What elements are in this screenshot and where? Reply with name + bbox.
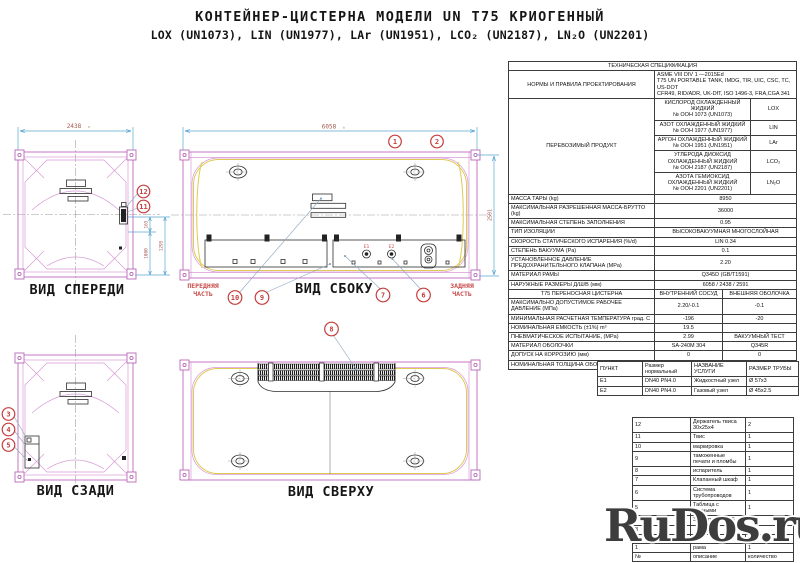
product-code: LIN xyxy=(750,121,796,135)
spec-value: 0.95 xyxy=(654,219,796,227)
front-part-label-2: ЧАСТЬ xyxy=(193,290,213,298)
spec-value: 2.20 xyxy=(654,256,796,270)
service-header: РАЗМЕР ТРУБЫ xyxy=(746,362,798,376)
balloon-6: 6 xyxy=(417,288,431,302)
spec-dual-row: МИНИМАЛЬНАЯ РАСЧЕТНАЯ ТЕМПЕРАТУРА град. … xyxy=(509,314,796,323)
balloon-2: 2 xyxy=(431,135,444,148)
spec-value: 6058 / 2438 / 2591 xyxy=(654,281,796,289)
leader-8-dot xyxy=(355,368,357,370)
product-un: № ООН 2201 (UN2201) xyxy=(673,186,732,192)
spec-outer-value: 0 xyxy=(722,351,796,359)
leader-5 xyxy=(15,447,29,461)
spec-label: НОМИНАЛЬНАЯ ЕМКОСТЬ (±1%) m³ xyxy=(509,324,654,332)
product-un: № ООН 1073 (UN1073) xyxy=(673,112,732,118)
norms-line: T75 UN PORTABLE TANK, IMDG, TIR, UIC, CS… xyxy=(657,78,794,90)
top-lifting-lugs xyxy=(228,370,427,471)
service-pipe: Ø 45х2.5 xyxy=(746,387,798,395)
spec-inner-value: -196 xyxy=(654,315,722,323)
balloon-1: 1 xyxy=(389,135,402,148)
spec-label: ТИП ИЗОЛЯЦИИ xyxy=(509,228,654,236)
spec-inner-value: 2.20/-0.1 xyxy=(654,299,722,313)
spec-norms-row: НОРМЫ И ПРАВИЛА ПРОЕКТИРОВАНИЯ ASME VIII… xyxy=(509,70,796,98)
spec-value: Q345D (GB/T1591) xyxy=(654,271,796,279)
spec-inner-value: 19.5 xyxy=(654,324,722,332)
spec-value: 36000 xyxy=(654,204,796,218)
front-part-label-1: ПЕРЕДНЯЯ xyxy=(187,282,218,290)
spec-outer-value: ВАКУУМНЫЙ ТЕСТ xyxy=(722,333,796,341)
product-name: УГЛЕРОДА ДИОКСИД ОХЛАЖДЕННЫЙ ЖИДКИЙ xyxy=(657,152,748,164)
part-no: 8 xyxy=(633,467,690,475)
front-dim-1080: 1080 xyxy=(144,248,150,259)
product-name: КИСЛОРОД ОХЛАЖДЕННЫЙ ЖИДКИЙ xyxy=(657,100,748,112)
rear-view: 3 4 5 ВИД СЗАДИ xyxy=(2,335,136,499)
service-header: ПУНКТ xyxy=(598,362,642,376)
balloon-9: 9 xyxy=(255,291,269,305)
spec-value: 8950 xyxy=(654,195,796,203)
svg-text:1: 1 xyxy=(393,138,397,146)
product-code: LCO₂ xyxy=(750,151,796,172)
part-qty: 1 xyxy=(745,467,793,475)
side-view: 6058 ± 1 2 xyxy=(171,124,499,305)
spec-label: МАКСИМАЛЬНО ДОПУСТИМОЕ РАБОЧЕЕ ДАВЛЕНИЕ … xyxy=(509,299,654,313)
product-name-cell: АРГОН ОХЛАЖДЕННЫЙ ЖИДКИЙ № ООН 1951 (UN1… xyxy=(654,136,750,150)
front-view: 2438 ± 12 xyxy=(3,123,170,298)
spec-outer-value: -20 xyxy=(722,315,796,323)
spec-products-list: КИСЛОРОД ОХЛАЖДЕННЫЙ ЖИДКИЙ № ООН 1073 (… xyxy=(654,99,796,194)
spec-row: ТИП ИЗОЛЯЦИИ ВЫСОКОВАКУУМНАЯ МНОГОСЛОЙНА… xyxy=(509,227,796,236)
spec-row: МАКСИМАЛЬНАЯ СТЕПЕНЬ ЗАПОЛНЕНИЯ 0.95 xyxy=(509,218,796,227)
spec-inner-value: 0 xyxy=(654,351,722,359)
part-desc: таможенные печати и пломбы xyxy=(690,452,745,466)
spec-label: СКОРОСТЬ СТАТИЧЕСКОГО ИСПАРЕНИЯ (%/d) xyxy=(509,238,654,246)
service-row: E2 DN40 PN4.0 Газовый узел Ø 45х2.5 xyxy=(598,386,798,395)
part-qty: 1 xyxy=(745,452,793,466)
blueprint-page: { "title": { "line1": "КОНТЕЙНЕР-ЦИСТЕРН… xyxy=(0,0,800,563)
svg-text:8: 8 xyxy=(329,326,333,334)
service-pipe: Ø 57х3 xyxy=(746,377,798,385)
top-view-label: ВИД СВЕРХУ xyxy=(288,484,374,500)
side-dim-height: 2591 xyxy=(488,209,494,221)
front-dim-1295: 1295 xyxy=(159,240,165,251)
spec-row: МАССА ТАРЫ (kg) 8950 xyxy=(509,194,796,203)
rear-view-label: ВИД СЗАДИ xyxy=(37,483,115,499)
spec-norms-value: ASME VIII DIV 1 —2015Ed T75 UN PORTABLE … xyxy=(654,71,796,98)
parts-row: 10 маркировка 1 xyxy=(633,442,793,451)
product-name-cell: АЗОТ ОХЛАЖДЕННЫЙ ЖИДКИЙ № ООН 1977 (UN19… xyxy=(654,121,750,135)
product-row: АЗОТА ГЕМИОКСИД ОХЛАЖДЕННЫЙ ЖИДКИЙ № ООН… xyxy=(654,172,796,194)
service-table: ПУНКТ Размер нормальный НАЗВАНИЕ УСЛУГИ … xyxy=(597,361,799,396)
top-evaporator xyxy=(258,363,395,392)
rear-part-label-1: ЗАДНЯЯ xyxy=(450,282,474,290)
title-line1: КОНТЕЙНЕР-ЦИСТЕРНА МОДЕЛИ UN T75 КРИОГЕН… xyxy=(0,9,800,25)
spec-label: НАРУЖНЫЕ РАЗМЕРЫ Д/Ш/В (мм) xyxy=(509,281,654,289)
spec-label: МИНИМАЛЬНАЯ РАСЧЕТНАЯ ТЕМПЕРАТУРА град. … xyxy=(509,315,654,323)
part-no: 9 xyxy=(633,452,690,466)
part-qty: 1 xyxy=(745,486,793,500)
product-name-cell: КИСЛОРОД ОХЛАЖДЕННЫЙ ЖИДКИЙ № ООН 1073 (… xyxy=(654,99,750,120)
spec-outer-value: Q345R xyxy=(722,342,796,350)
front-dim-165: 165 xyxy=(144,220,150,228)
product-row: КИСЛОРОД ОХЛАЖДЕННЫЙ ЖИДКИЙ № ООН 1073 (… xyxy=(654,99,796,120)
part-no: 10 xyxy=(633,443,690,451)
side-dim-length-tol: ± xyxy=(343,126,345,130)
front-dim-width-tol: ± xyxy=(88,125,90,129)
spec-inner-value: 2.99 xyxy=(654,333,722,341)
side-lifting-lugs xyxy=(226,163,427,181)
top-view: 8 ВИД СВЕРХУ xyxy=(180,322,480,500)
spec-dual-row: МАКСИМАЛЬНО ДОПУСТИМОЕ РАБОЧЕЕ ДАВЛЕНИЕ … xyxy=(509,298,796,313)
spec-row: СТЕПЕНЬ ВАКУУМА (Pa) 0.1 xyxy=(509,246,796,255)
parts-row: 8 испаритель 1 xyxy=(633,466,793,475)
balloon-8: 8 xyxy=(325,322,339,336)
side-equipment-bay xyxy=(205,235,465,269)
balloon-4: 4 xyxy=(2,423,15,436)
service-item: E2 xyxy=(598,387,642,395)
e1-label: E1 xyxy=(364,244,370,250)
product-name-cell: АЗОТА ГЕМИОКСИД ОХЛАЖДЕННЫЙ ЖИДКИЙ № ООН… xyxy=(654,173,750,194)
spec-value: ВЫСОКОВАКУУМНАЯ МНОГОСЛОЙНАЯ xyxy=(654,228,796,236)
part-no: 6 xyxy=(633,486,690,500)
spec-label: ДОПУСК НА КОРРОЗИЮ (мм) xyxy=(509,351,654,359)
dual-header-inner: ВНУТРЕННИЙ СОСУД xyxy=(654,290,722,298)
product-name: АЗОТА ГЕМИОКСИД ОХЛАЖДЕННЫЙ ЖИДКИЙ xyxy=(657,174,748,186)
svg-text:4: 4 xyxy=(6,426,10,434)
parts-row: 11 Твис 1 xyxy=(633,432,793,441)
part-qty: 1 xyxy=(745,476,793,484)
part-desc: Твис xyxy=(690,433,745,441)
dual-header-label: Т75 ПЕРЕНОСНАЯ ЦИСТЕРНА xyxy=(509,290,654,298)
leader-4 xyxy=(15,431,27,446)
side-document-plates xyxy=(311,194,346,217)
svg-text:7: 7 xyxy=(381,292,385,300)
balloon-7: 7 xyxy=(376,288,390,302)
product-un: № ООН 1951 (UN1951) xyxy=(673,143,732,149)
spec-dual-row: ПНЕВМАТИЧЕСКОЕ ИСПЫТАНИЕ, (MPa) 2.99 ВАК… xyxy=(509,332,796,341)
spec-products-row: ПЕРЕВОЗИМЫЙ ПРОДУКТ КИСЛОРОД ОХЛАЖДЕННЫЙ… xyxy=(509,98,796,194)
parts-footer-no: № xyxy=(633,553,690,561)
part-desc: Держатель твиса 30х25х4 xyxy=(690,418,745,432)
service-size: DN40 PN4.0 xyxy=(642,387,691,395)
service-size: DN40 PN4.0 xyxy=(642,377,691,385)
balloon-3: 3 xyxy=(2,408,15,421)
svg-text:2: 2 xyxy=(435,138,439,146)
spec-dual-row: МАТЕРИАЛ ОБОЛОЧКИ SA-240M 304 Q345R xyxy=(509,341,796,350)
product-row: АЗОТ ОХЛАЖДЕННЫЙ ЖИДКИЙ № ООН 1977 (UN19… xyxy=(654,120,796,135)
side-view-label: ВИД СБОКУ xyxy=(295,281,373,297)
svg-text:5: 5 xyxy=(6,442,10,450)
product-row: УГЛЕРОДА ДИОКСИД ОХЛАЖДЕННЫЙ ЖИДКИЙ № ОО… xyxy=(654,150,796,172)
drawing-title: КОНТЕЙНЕР-ЦИСТЕРНА МОДЕЛИ UN T75 КРИОГЕН… xyxy=(0,9,800,42)
balloon-10: 10 xyxy=(228,291,242,305)
leader-10-dot xyxy=(320,198,322,200)
spec-outer-value xyxy=(722,324,796,332)
service-item: E1 xyxy=(598,377,642,385)
svg-text:6: 6 xyxy=(421,292,425,300)
part-qty: 1 xyxy=(745,433,793,441)
parts-footer-row: № описание количество xyxy=(633,552,793,561)
spec-label: МАССА ТАРЫ (kg) xyxy=(509,195,654,203)
product-un: № ООН 2187 (UN2187) xyxy=(673,165,732,171)
balloon-12: 12 xyxy=(137,185,150,198)
watermark: RuDos.ru xyxy=(604,499,800,552)
service-row: E1 DN40 PN4.0 Жидкостный узел Ø 57х3 xyxy=(598,376,798,385)
parts-row: 6 Система трубопроводов 1 xyxy=(633,485,793,500)
leader-6-dot xyxy=(392,258,394,260)
spec-dual-row: ДОПУСК НА КОРРОЗИЮ (мм) 0 0 xyxy=(509,350,796,359)
part-desc: Система трубопроводов xyxy=(690,486,745,500)
leader-12 xyxy=(127,194,138,206)
spec-row: МАТЕРИАЛ РАМЫ Q345D (GB/T1591) xyxy=(509,270,796,279)
parts-row: 9 таможенные печати и пломбы 1 xyxy=(633,451,793,466)
part-desc: Клапанный шкаф xyxy=(690,476,745,484)
spec-row: НАРУЖНЫЕ РАЗМЕРЫ Д/Ш/В (мм) 6058 / 2438 … xyxy=(509,280,796,289)
product-un: № ООН 1977 (UN1977) xyxy=(673,128,732,134)
leader-3 xyxy=(14,417,26,438)
spec-label: МАКСИМАЛЬНАЯ СТЕПЕНЬ ЗАПОЛНЕНИЯ xyxy=(509,219,654,227)
product-row: АРГОН ОХЛАЖДЕННЫЙ ЖИДКИЙ № ООН 1951 (UN1… xyxy=(654,135,796,150)
spec-value: 0.1 xyxy=(654,247,796,255)
service-header: Размер нормальный xyxy=(642,362,691,376)
spec-header-row: ТЕХНИЧЕСКАЯ СПЕЦИФИКАЦИЯ xyxy=(509,62,796,70)
spec-row: УСТАНОВЛЕННОЕ ДАВЛЕНИЕ ПРЕДОХРАНИТЕЛЬНОГ… xyxy=(509,255,796,270)
product-code: LAr xyxy=(750,136,796,150)
side-dim-length: 6058 xyxy=(322,124,337,131)
spec-row: МАКСИМАЛЬНАЯ РАЗРЕШЕННАЯ МАССА-БРУТТО (k… xyxy=(509,203,796,218)
service-name: Жидкостный узел xyxy=(691,377,746,385)
rear-part-label-2: ЧАСТЬ xyxy=(452,290,472,298)
spec-row: СКОРОСТЬ СТАТИЧЕСКОГО ИСПАРЕНИЯ (%/d) LI… xyxy=(509,237,796,246)
part-qty: 2 xyxy=(745,418,793,432)
leader-11 xyxy=(128,208,138,212)
part-desc: испаритель xyxy=(690,467,745,475)
svg-text:3: 3 xyxy=(6,411,10,419)
part-desc: маркировка xyxy=(690,443,745,451)
parts-row: 7 Клапанный шкаф 1 xyxy=(633,475,793,484)
balloon-5: 5 xyxy=(2,439,15,452)
spec-dual-row: НОМИНАЛЬНАЯ ЕМКОСТЬ (±1%) m³ 19.5 xyxy=(509,323,796,332)
front-dim-width: 2438 xyxy=(67,123,82,130)
e2-label: E2 xyxy=(389,244,395,250)
service-header: НАЗВАНИЕ УСЛУГИ xyxy=(691,362,746,376)
spec-label: МАКСИМАЛЬНАЯ РАЗРЕШЕННАЯ МАССА-БРУТТО (k… xyxy=(509,204,654,218)
balloon-11: 11 xyxy=(137,200,150,213)
parts-footer-qty: количество xyxy=(745,553,793,561)
leader-7-dot xyxy=(344,255,346,257)
svg-text:12: 12 xyxy=(139,188,147,196)
spec-label: УСТАНОВЛЕННОЕ ДАВЛЕНИЕ ПРЕДОХРАНИТЕЛЬНОГ… xyxy=(509,256,654,270)
leader-9-dot xyxy=(329,263,331,265)
parts-footer-desc: описание xyxy=(690,553,745,561)
title-line2: LOX (UN1073), LIN (UN1977), LAr (UN1951)… xyxy=(0,28,800,42)
svg-text:9: 9 xyxy=(260,294,264,302)
spec-norms-label: НОРМЫ И ПРАВИЛА ПРОЕКТИРОВАНИЯ xyxy=(509,71,654,98)
spec-label: СТЕПЕНЬ ВАКУУМА (Pa) xyxy=(509,247,654,255)
norms-line: CFR49, RID/ADR, UK-DfT, ISO 1496-3, FRA,… xyxy=(657,91,794,97)
spec-header: ТЕХНИЧЕСКАЯ СПЕЦИФИКАЦИЯ xyxy=(509,62,796,70)
spec-products-label: ПЕРЕВОЗИМЫЙ ПРОДУКТ xyxy=(509,99,654,194)
spec-outer-value: -0.1 xyxy=(722,299,796,313)
spec-dual-header: Т75 ПЕРЕНОСНАЯ ЦИСТЕРНА ВНУТРЕННИЙ СОСУД… xyxy=(509,289,796,298)
product-code: LOX xyxy=(750,99,796,120)
dual-header-outer: ВНЕШНЯЯ ОБОЛОЧКА xyxy=(722,290,796,298)
product-name-cell: УГЛЕРОДА ДИОКСИД ОХЛАЖДЕННЫЙ ЖИДКИЙ № ОО… xyxy=(654,151,750,172)
part-no: 12 xyxy=(633,418,690,432)
svg-text:11: 11 xyxy=(139,203,147,211)
svg-text:10: 10 xyxy=(231,294,239,302)
product-code: LN₂O xyxy=(750,173,796,194)
spec-table: ТЕХНИЧЕСКАЯ СПЕЦИФИКАЦИЯ НОРМЫ И ПРАВИЛА… xyxy=(508,61,797,370)
spec-label: МАТЕРИАЛ ОБОЛОЧКИ xyxy=(509,342,654,350)
spec-label: ПНЕВМАТИЧЕСКОЕ ИСПЫТАНИЕ, (MPa) xyxy=(509,333,654,341)
service-header-row: ПУНКТ Размер нормальный НАЗВАНИЕ УСЛУГИ … xyxy=(598,362,798,376)
leader-6 xyxy=(393,259,421,289)
part-no: 7 xyxy=(633,476,690,484)
service-name: Газовый узел xyxy=(691,387,746,395)
spec-value: LIN 0.34 xyxy=(654,238,796,246)
part-qty: 1 xyxy=(745,443,793,451)
front-view-label: ВИД СПЕРЕДИ xyxy=(30,282,125,298)
part-no: 11 xyxy=(633,433,690,441)
spec-inner-value: SA-240M 304 xyxy=(654,342,722,350)
spec-label: МАТЕРИАЛ РАМЫ xyxy=(509,271,654,279)
parts-row: 12 Держатель твиса 30х25х4 2 xyxy=(633,418,793,432)
